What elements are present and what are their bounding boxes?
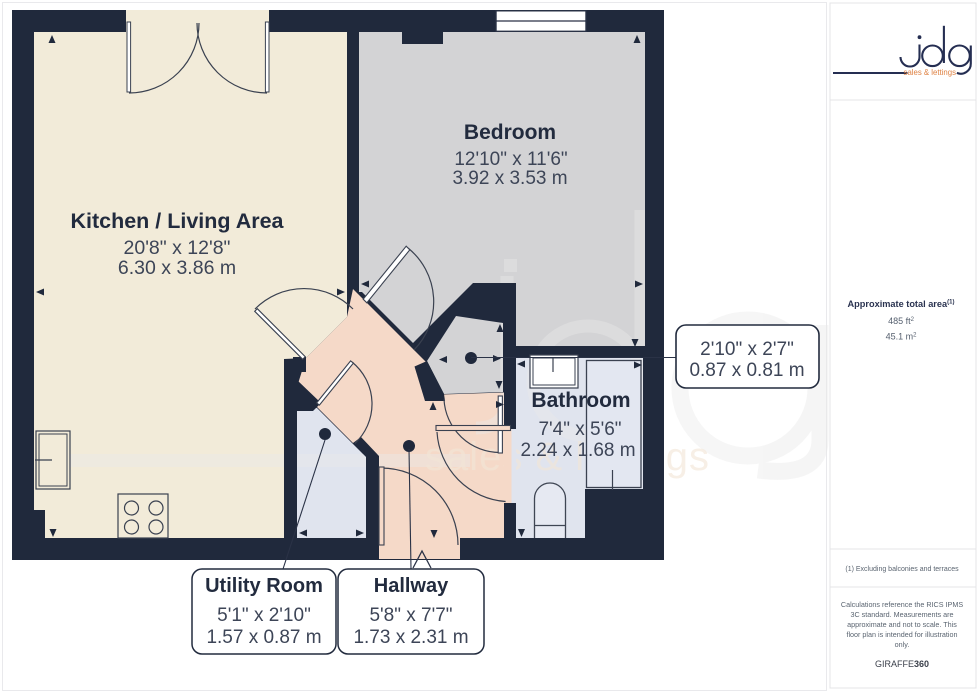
svg-text:7'4" x 5'6": 7'4" x 5'6" [538, 419, 621, 440]
svg-text:Utility Room: Utility Room [205, 575, 323, 597]
svg-text:5'8" x 7'7": 5'8" x 7'7" [369, 605, 452, 626]
svg-text:sales & lettings: sales & lettings [904, 68, 957, 77]
svg-text:1.57 x 0.87 m: 1.57 x 0.87 m [206, 627, 321, 648]
svg-text:1.73 x 2.31 m: 1.73 x 2.31 m [353, 627, 468, 648]
svg-text:2.24 x 1.68 m: 2.24 x 1.68 m [520, 440, 635, 461]
svg-text:12'10" x 11'6": 12'10" x 11'6" [454, 149, 567, 170]
svg-text:3C standard. Measurements are: 3C standard. Measurements are [850, 610, 953, 619]
svg-text:2'10" x 2'7": 2'10" x 2'7" [700, 339, 794, 360]
svg-text:5'1" x 2'10": 5'1" x 2'10" [217, 605, 311, 626]
svg-text:GIRAFFE360: GIRAFFE360 [875, 659, 929, 669]
svg-text:Approximate total area(1): Approximate total area(1) [848, 299, 955, 309]
svg-text:approximate and not to scale.: approximate and not to scale. This [847, 620, 957, 629]
svg-text:only.: only. [895, 640, 910, 649]
svg-text:Hallway: Hallway [374, 575, 449, 597]
svg-text:45.1 m2: 45.1 m2 [886, 332, 918, 342]
svg-text:Bedroom: Bedroom [464, 121, 556, 144]
svg-text:(1) Excluding balconies and te: (1) Excluding balconies and terraces [845, 566, 959, 573]
svg-text:Kitchen / Living Area: Kitchen / Living Area [70, 209, 284, 233]
svg-text:floor plan is intended for ill: floor plan is intended for illustration [846, 630, 957, 639]
svg-text:Calculations reference the RIC: Calculations reference the RICS IPMS [841, 600, 963, 609]
svg-text:Bathroom: Bathroom [531, 389, 630, 412]
svg-text:20'8" x 12'8": 20'8" x 12'8" [124, 237, 231, 259]
svg-text:0.87 x 0.81 m: 0.87 x 0.81 m [689, 360, 804, 381]
svg-text:3.92 x 3.53 m: 3.92 x 3.53 m [452, 168, 567, 189]
svg-text:6.30 x 3.86 m: 6.30 x 3.86 m [118, 257, 236, 279]
